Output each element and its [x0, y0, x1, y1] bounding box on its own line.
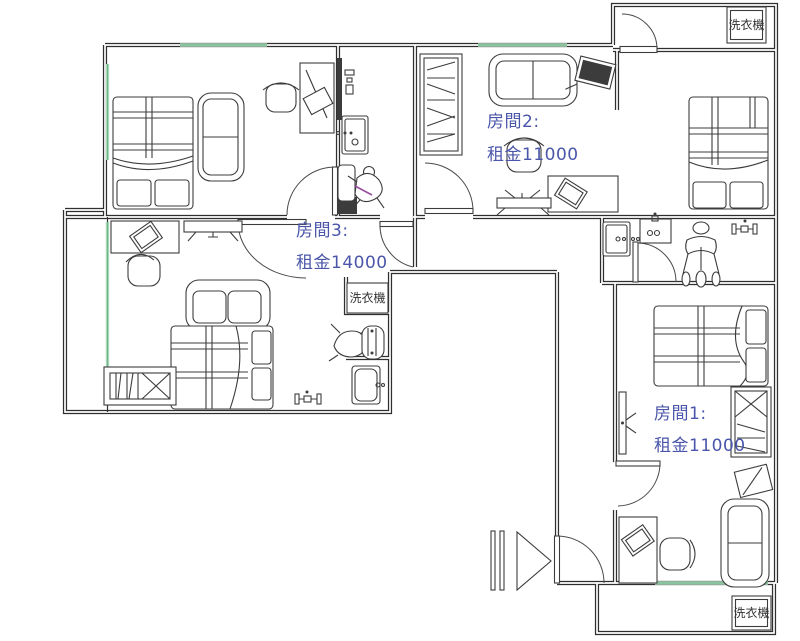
furniture-room-2 [489, 54, 768, 215]
bookshelf-room-3 [104, 367, 176, 405]
door-room-1 [616, 461, 660, 506]
sofa-room-1 [721, 499, 769, 587]
room-1-name: 房間1: [654, 404, 707, 424]
person-exercise-bike [682, 222, 720, 287]
desk-chair-room-3 [126, 254, 160, 286]
desk-room-2 [497, 176, 618, 215]
room-2-rent: 租金11000 [487, 145, 579, 165]
room-3-rent: 租金14000 [296, 253, 388, 273]
bed-room-2 [689, 97, 768, 209]
sofa-room-2 [489, 54, 577, 106]
entrance-arrow [491, 531, 551, 590]
door-top-left-room [287, 167, 338, 215]
door-balcony-top [620, 14, 657, 53]
bed-room-3 [171, 326, 273, 409]
desk-room-1 [619, 517, 657, 583]
washer-label-bottom-right: 洗衣機 [733, 605, 769, 620]
door-bathroom [633, 242, 676, 282]
washer-label-top-right: 洗衣機 [728, 17, 764, 32]
floor-plan-drawing: 房間2: 租金11000 房間3: 租金14000 房間1: 租金11000 洗… [0, 0, 800, 641]
toilet-room-3 [352, 366, 385, 404]
bed-top-left [113, 97, 193, 209]
towel-rack-icon [732, 220, 757, 235]
tv-wall-top-left [337, 58, 354, 120]
desk-chair-top-left [263, 83, 299, 112]
furniture-room-3 [104, 221, 385, 409]
tv-corner-room-1 [734, 464, 772, 497]
desk-top-left [300, 63, 334, 133]
tv-wall-room-1 [619, 392, 636, 454]
barbell-icon-room-3 [295, 391, 321, 405]
room-1-rent: 租金11000 [654, 436, 746, 456]
room-2-name: 房間2: [487, 112, 540, 132]
sink-top-left [337, 116, 369, 154]
washer-label-room-3: 洗衣機 [349, 290, 385, 305]
floor-plan: 房間2: 租金11000 房間3: 租金14000 房間1: 租金11000 洗… [0, 0, 800, 641]
furniture-top-left-room [113, 58, 384, 214]
desk-chair-room-1 [660, 538, 695, 570]
door-room-2 [425, 163, 473, 214]
room-3-name: 房間3: [296, 221, 349, 241]
person-figure-room-3 [329, 324, 384, 361]
door-entrance [555, 536, 605, 583]
wardrobe-middle [420, 54, 462, 155]
desk-room-3 [111, 221, 179, 253]
bed-room-1 [654, 306, 768, 386]
sofa-top-left [198, 93, 244, 181]
wall-shelf-room-3 [184, 221, 242, 241]
bathroom [603, 213, 757, 288]
sofa-room-3 [186, 280, 270, 330]
